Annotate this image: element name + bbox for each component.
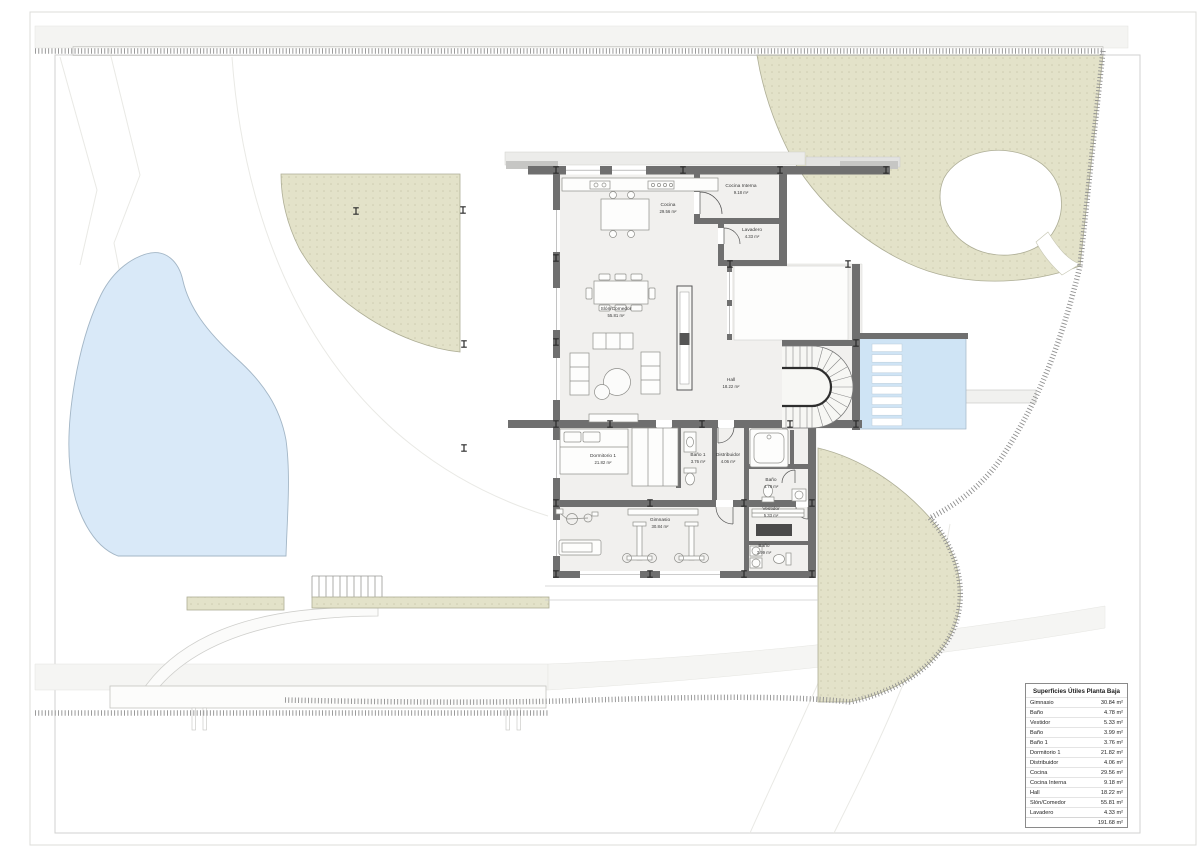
row-label: Dormitorio 1	[1030, 750, 1060, 756]
table-row: Cocina 29.56 m²	[1026, 767, 1127, 777]
table-row: Baño 1 3.76 m²	[1026, 737, 1127, 747]
row-label: Baño	[1030, 730, 1043, 736]
kitchen-island	[601, 199, 649, 230]
table-row: Vestidor 5.33 m²	[1026, 717, 1127, 727]
table-row: Lavadero 4.33 m²	[1026, 807, 1127, 817]
kitchen-counter	[562, 178, 718, 191]
site-plan-drawing	[0, 0, 1200, 848]
table-row: Slón/Comedor 55.81 m²	[1026, 797, 1127, 807]
row-value: 21.82 m²	[1101, 750, 1123, 756]
row-label: Hall	[1030, 790, 1040, 796]
sofa-right	[641, 352, 660, 394]
table-row: Gimnasio 30.84 m²	[1026, 697, 1127, 707]
green-strip-1	[187, 597, 284, 610]
areas-table: Superficies Útiles Planta Baja Gimnasio …	[1025, 683, 1128, 828]
areas-table-title: Superficies Útiles Planta Baja	[1026, 684, 1127, 697]
row-label: Lavadero	[1030, 810, 1053, 816]
green-bottom-right	[818, 448, 960, 702]
table-total-row: 191.68 m²	[1026, 817, 1127, 827]
wardrobe	[632, 428, 678, 486]
table-row: Cocina Interna 9.18 m²	[1026, 777, 1127, 787]
courtyard	[734, 266, 848, 340]
sofa-left	[570, 353, 589, 395]
bed	[560, 429, 628, 474]
row-label: Gimnasio	[1030, 700, 1054, 706]
gym-bench	[559, 540, 601, 555]
row-label: Distribuidor	[1030, 760, 1058, 766]
row-value: 30.84 m²	[1101, 700, 1123, 706]
row-label: Baño	[1030, 710, 1043, 716]
row-value: 3.76 m²	[1104, 740, 1123, 746]
row-label: Baño 1	[1030, 740, 1048, 746]
row-value: 9.18 m²	[1104, 780, 1123, 786]
sideboard	[589, 414, 638, 422]
table-row: Baño 4.78 m²	[1026, 707, 1127, 717]
row-value: 5.33 m²	[1104, 720, 1123, 726]
row-value: 4.06 m²	[1104, 760, 1123, 766]
row-label: Vestidor	[1030, 720, 1050, 726]
bathtub	[750, 429, 788, 467]
row-value: 29.56 m²	[1101, 770, 1123, 776]
sofa-top	[593, 333, 633, 349]
table-row: Baño 3.99 m²	[1026, 727, 1127, 737]
pool-walkway	[964, 390, 1036, 403]
row-label: Cocina Interna	[1030, 780, 1066, 786]
row-label: Slón/Comedor	[1030, 800, 1066, 806]
green-left	[281, 174, 460, 352]
dining-table	[594, 281, 648, 304]
table-row: Distribuidor 4.06 m²	[1026, 757, 1127, 767]
site-plan-sheet: Cocina 29.56 m² Cocina Interna 9.18 m² L…	[0, 0, 1200, 848]
row-value: 4.78 m²	[1104, 710, 1123, 716]
row-value: 3.99 m²	[1104, 730, 1123, 736]
table-row: Hall 18.22 m²	[1026, 787, 1127, 797]
total-value: 191.68 m²	[1098, 820, 1123, 826]
table-row: Dormitorio 1 21.82 m²	[1026, 747, 1127, 757]
pond	[69, 253, 289, 556]
exterior-steps	[312, 576, 382, 598]
fireplace	[677, 286, 692, 390]
green-strip-2	[312, 597, 549, 608]
row-label: Cocina	[1030, 770, 1047, 776]
row-value: 18.22 m²	[1101, 790, 1123, 796]
row-value: 55.81 m²	[1101, 800, 1123, 806]
swimming-pool	[858, 338, 966, 429]
row-value: 4.33 m²	[1104, 810, 1123, 816]
terrace-edge	[545, 586, 818, 600]
